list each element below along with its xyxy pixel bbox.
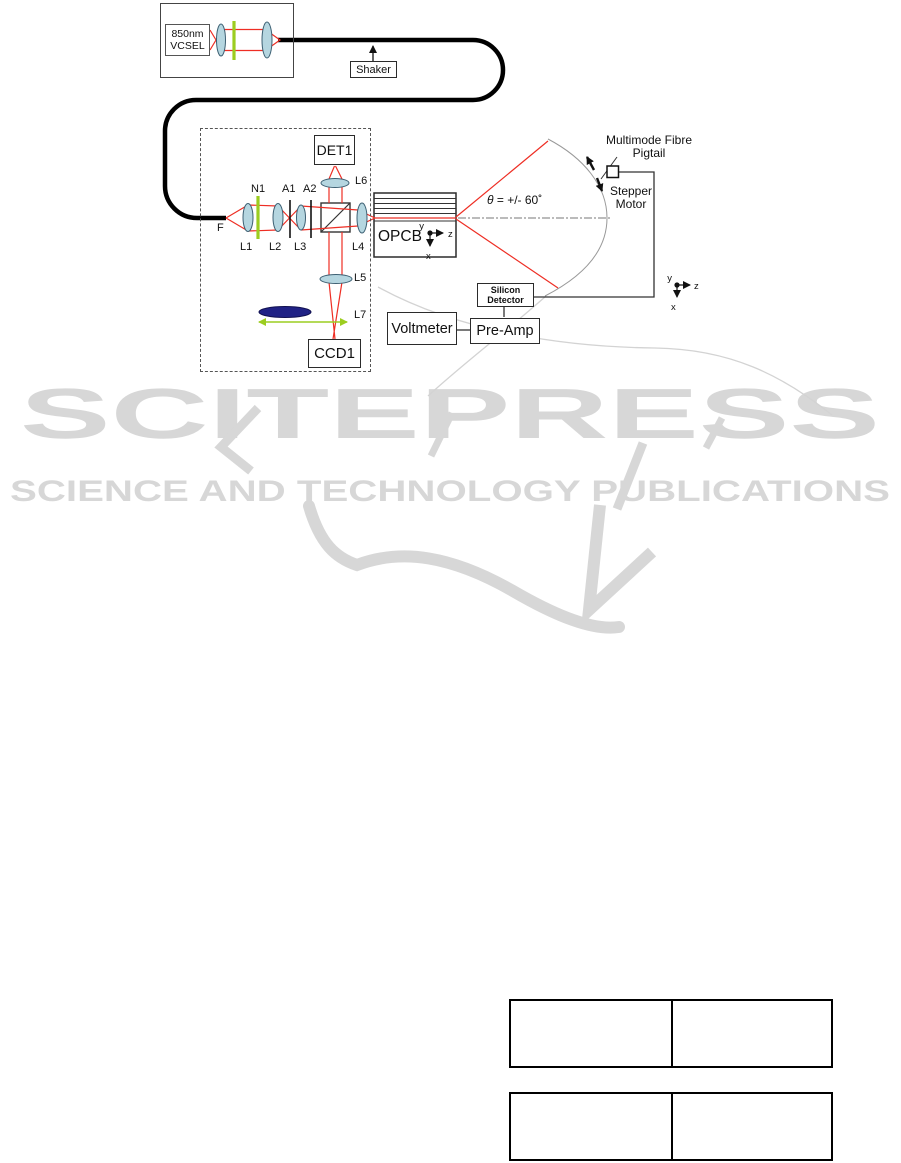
stepper-motor-line1: Stepper bbox=[610, 184, 652, 198]
voltmeter-label: Voltmeter bbox=[391, 321, 452, 337]
opcb-z-label: z bbox=[448, 229, 453, 240]
right-x-label: x bbox=[671, 302, 676, 313]
vcsel-source-box: 850nm VCSEL bbox=[165, 24, 210, 56]
opcb-axes-origin-dot bbox=[427, 230, 432, 235]
opcb-x-label: x bbox=[426, 251, 431, 262]
aperture-a1-label: A1 bbox=[282, 183, 295, 195]
table-cell bbox=[673, 1094, 831, 1159]
lens-l1-label: L1 bbox=[240, 241, 252, 253]
preamp-label: Pre-Amp bbox=[476, 323, 533, 339]
right-axes-origin-dot bbox=[674, 282, 679, 287]
bottom-table-2 bbox=[509, 1092, 833, 1161]
lens-l6-label: L6 bbox=[355, 175, 367, 187]
ccd1-label: CCD1 bbox=[314, 345, 355, 362]
stepper-motor-line2: Motor bbox=[616, 197, 647, 211]
multimode-fibre-line2: Pigtail bbox=[633, 146, 666, 160]
watermark-subtitle: SCIENCE AND TECHNOLOGY PUBLICATIONS bbox=[10, 475, 890, 508]
voltmeter-box: Voltmeter bbox=[387, 312, 457, 345]
right-axes: y z x bbox=[667, 273, 699, 313]
lens-l3-label: L3 bbox=[294, 241, 306, 253]
preamp-box: Pre-Amp bbox=[470, 318, 540, 344]
shaker-label: Shaker bbox=[356, 64, 391, 76]
det1-label: DET1 bbox=[317, 142, 353, 158]
aperture-a2-label: A2 bbox=[303, 183, 316, 195]
silicon-detector-box: Silicon Detector bbox=[477, 283, 534, 307]
table-cell bbox=[511, 1001, 673, 1066]
figure-page: SCITEPRESS SCIENCE AND TECHNOLOGY PUBLIC… bbox=[0, 0, 901, 1163]
right-z-label: z bbox=[694, 281, 699, 292]
bottom-table-1 bbox=[509, 999, 833, 1068]
opcb-box bbox=[374, 193, 456, 257]
ccd1-box: CCD1 bbox=[308, 339, 361, 368]
filter-n1-label: N1 bbox=[251, 183, 265, 195]
stepper-motor-label: Stepper Motor bbox=[605, 185, 657, 211]
det1-box: DET1 bbox=[314, 135, 355, 165]
watermark-check-swoosh bbox=[589, 505, 652, 610]
lens-l2-label: L2 bbox=[269, 241, 281, 253]
silicon-detector-line2: Detector bbox=[487, 295, 524, 305]
table-cell bbox=[673, 1001, 831, 1066]
table-cell bbox=[511, 1094, 673, 1159]
vcsel-label-line2: VCSEL bbox=[170, 40, 204, 52]
silicon-detector-line1: Silicon bbox=[491, 285, 521, 295]
multimode-fibre-line1: Multimode Fibre bbox=[606, 133, 692, 147]
lens-l4-label: L4 bbox=[352, 241, 364, 253]
watermark-wave-swoosh bbox=[309, 506, 619, 628]
vcsel-label-line1: 850nm bbox=[171, 28, 203, 40]
multimode-fibre-label: Multimode Fibre Pigtail bbox=[594, 134, 704, 160]
opcb-label: OPCB bbox=[378, 231, 422, 243]
scan-angle-label: θ = +/- 60˚ bbox=[487, 194, 542, 206]
lens-l7-label: L7 bbox=[354, 309, 366, 321]
right-y-label: y bbox=[667, 273, 672, 284]
lens-l5-label: L5 bbox=[354, 272, 366, 284]
beam-scan-fan bbox=[456, 141, 558, 288]
fibre-pigtail-square bbox=[607, 166, 619, 178]
shaker-box: Shaker bbox=[350, 61, 397, 78]
diagram-canvas: SCITEPRESS SCIENCE AND TECHNOLOGY PUBLIC… bbox=[0, 0, 901, 1163]
fibre-end-label: F bbox=[217, 222, 224, 234]
scan-motion-arrow-up bbox=[587, 157, 594, 170]
theta-value: = +/- 60˚ bbox=[494, 193, 543, 207]
